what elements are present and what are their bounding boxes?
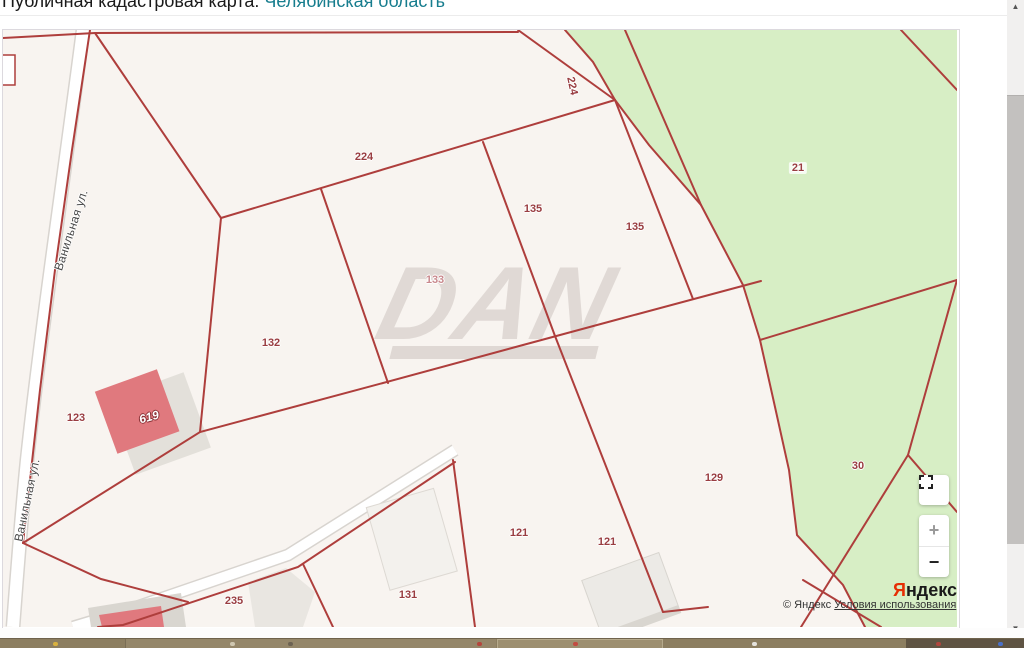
taskbar-icon-fragment: [230, 642, 235, 646]
fullscreen-icon: [919, 475, 933, 489]
copyright-text: © Яндекс: [783, 599, 831, 611]
zoom-out-button[interactable]: −: [919, 547, 949, 578]
yandex-logo-letter: Я: [893, 580, 906, 600]
yandex-logo-rest: ндекс: [906, 580, 957, 600]
taskbar-icon-fragment: [998, 642, 1003, 646]
browser-page: Публичная кадастровая карта: Челябинская…: [0, 0, 1024, 648]
taskbar-cropped[interactable]: [0, 638, 1024, 648]
parcel-label: 224: [355, 151, 373, 163]
parcel-label: 135: [524, 203, 542, 215]
parcel-label: 30: [852, 460, 864, 472]
parcel-label: 235: [225, 595, 243, 607]
parcel-label: 133: [426, 274, 444, 286]
parcel-label: 121: [510, 527, 528, 539]
vertical-scrollbar[interactable]: ▲ ▼: [1007, 0, 1024, 638]
scroll-up-arrow-icon[interactable]: ▲: [1007, 0, 1024, 14]
page-bottom-gap: [0, 628, 1024, 638]
taskbar-segment: [125, 639, 496, 648]
page-title-prefix: Публичная кадастровая карта:: [2, 0, 264, 11]
zoom-in-button[interactable]: +: [919, 515, 949, 547]
parcel-label: 135: [626, 221, 644, 233]
map-copyright: © Яндекс Условия использования: [783, 599, 956, 611]
taskbar-icon-fragment: [53, 642, 58, 646]
parcel-label: 121: [598, 536, 616, 548]
zoom-control: + −: [919, 515, 949, 577]
parcel-label: 131: [399, 589, 417, 601]
parcel-label: 132: [262, 337, 280, 349]
fullscreen-button[interactable]: [919, 475, 949, 505]
taskbar-icon-fragment: [288, 642, 293, 646]
map-canvas[interactable]: DAN: [3, 30, 957, 627]
parcel-label: 21: [789, 162, 807, 174]
taskbar-icon-fragment: [936, 642, 941, 646]
scrollbar-thumb[interactable]: [1007, 95, 1024, 544]
taskbar-icon-fragment: [752, 642, 757, 646]
terms-of-use-link[interactable]: Условия использования: [834, 599, 956, 611]
parcel-boundaries-layer: [3, 30, 957, 627]
taskbar-icon-fragment: [573, 642, 578, 646]
taskbar-segment: [906, 639, 1024, 648]
parcel-label: 123: [67, 412, 85, 424]
parcel-label: 129: [705, 472, 723, 484]
page-title-region: Челябинская область: [264, 0, 445, 11]
taskbar-segment: [497, 639, 663, 648]
yandex-logo[interactable]: Яндекс: [893, 580, 957, 601]
taskbar-icon-fragment: [477, 642, 482, 646]
page-title: Публичная кадастровая карта: Челябинская…: [0, 0, 1007, 16]
